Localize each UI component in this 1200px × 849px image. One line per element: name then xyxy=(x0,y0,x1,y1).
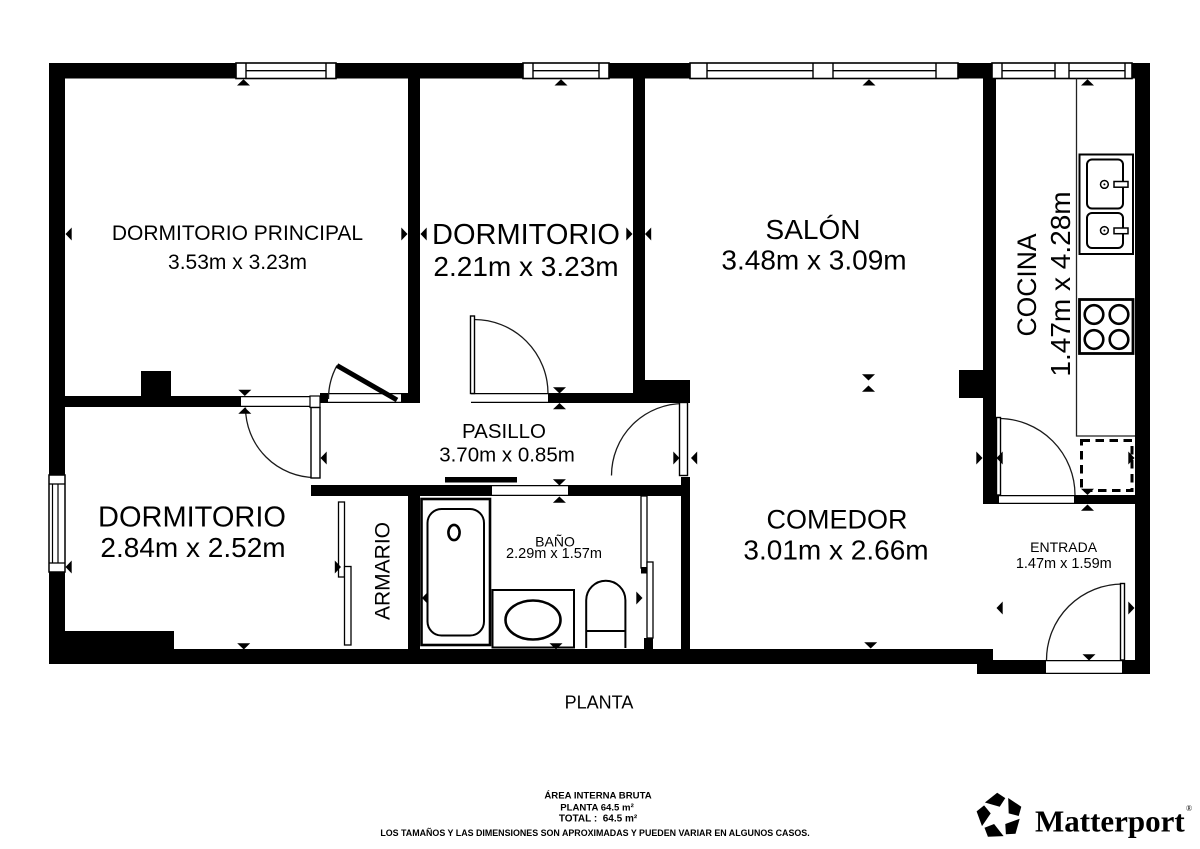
svg-text:DORMITORIO: DORMITORIO xyxy=(432,219,620,251)
svg-text:1.47m x 1.59m: 1.47m x 1.59m xyxy=(1016,556,1112,572)
svg-text:3.01m x 2.66m: 3.01m x 2.66m xyxy=(743,535,928,566)
svg-text:PLANTA: PLANTA xyxy=(565,693,634,713)
svg-text:PASILLO: PASILLO xyxy=(462,420,546,443)
svg-text:ENTRADA: ENTRADA xyxy=(1030,539,1098,555)
svg-text:2.21m x 3.23m: 2.21m x 3.23m xyxy=(433,251,618,282)
svg-text:COMEDOR: COMEDOR xyxy=(767,504,908,534)
svg-text:3.48m x 3.09m: 3.48m x 3.09m xyxy=(721,245,906,276)
svg-text:DORMITORIO: DORMITORIO xyxy=(98,502,286,534)
svg-text:LOS TAMAÑOS Y LAS DIMENSIONES: LOS TAMAÑOS Y LAS DIMENSIONES SON APROXI… xyxy=(380,828,809,838)
svg-text:®: ® xyxy=(1186,804,1192,813)
svg-text:3.53m x 3.23m: 3.53m x 3.23m xyxy=(168,251,307,274)
svg-text:SALÓN: SALÓN xyxy=(766,214,861,245)
svg-text:ARMARIO: ARMARIO xyxy=(372,522,395,620)
svg-text:DORMITORIO PRINCIPAL: DORMITORIO PRINCIPAL xyxy=(112,222,363,245)
svg-text:2.84m x 2.52m: 2.84m x 2.52m xyxy=(100,532,285,563)
svg-text:COCINA: COCINA xyxy=(1012,233,1042,336)
svg-text:TOTAL : 64.5 m²: TOTAL : 64.5 m² xyxy=(559,814,638,825)
svg-text:3.70m x 0.85m: 3.70m x 0.85m xyxy=(439,444,575,467)
svg-text:PLANTA 64.5 m²: PLANTA 64.5 m² xyxy=(560,802,634,813)
svg-text:1.47m x 4.28m: 1.47m x 4.28m xyxy=(1045,191,1076,376)
svg-text:ÁREA INTERNA BRUTA: ÁREA INTERNA BRUTA xyxy=(544,790,651,802)
svg-text:2.29m x 1.57m: 2.29m x 1.57m xyxy=(506,546,602,562)
svg-text:Matterport: Matterport xyxy=(1035,804,1185,839)
